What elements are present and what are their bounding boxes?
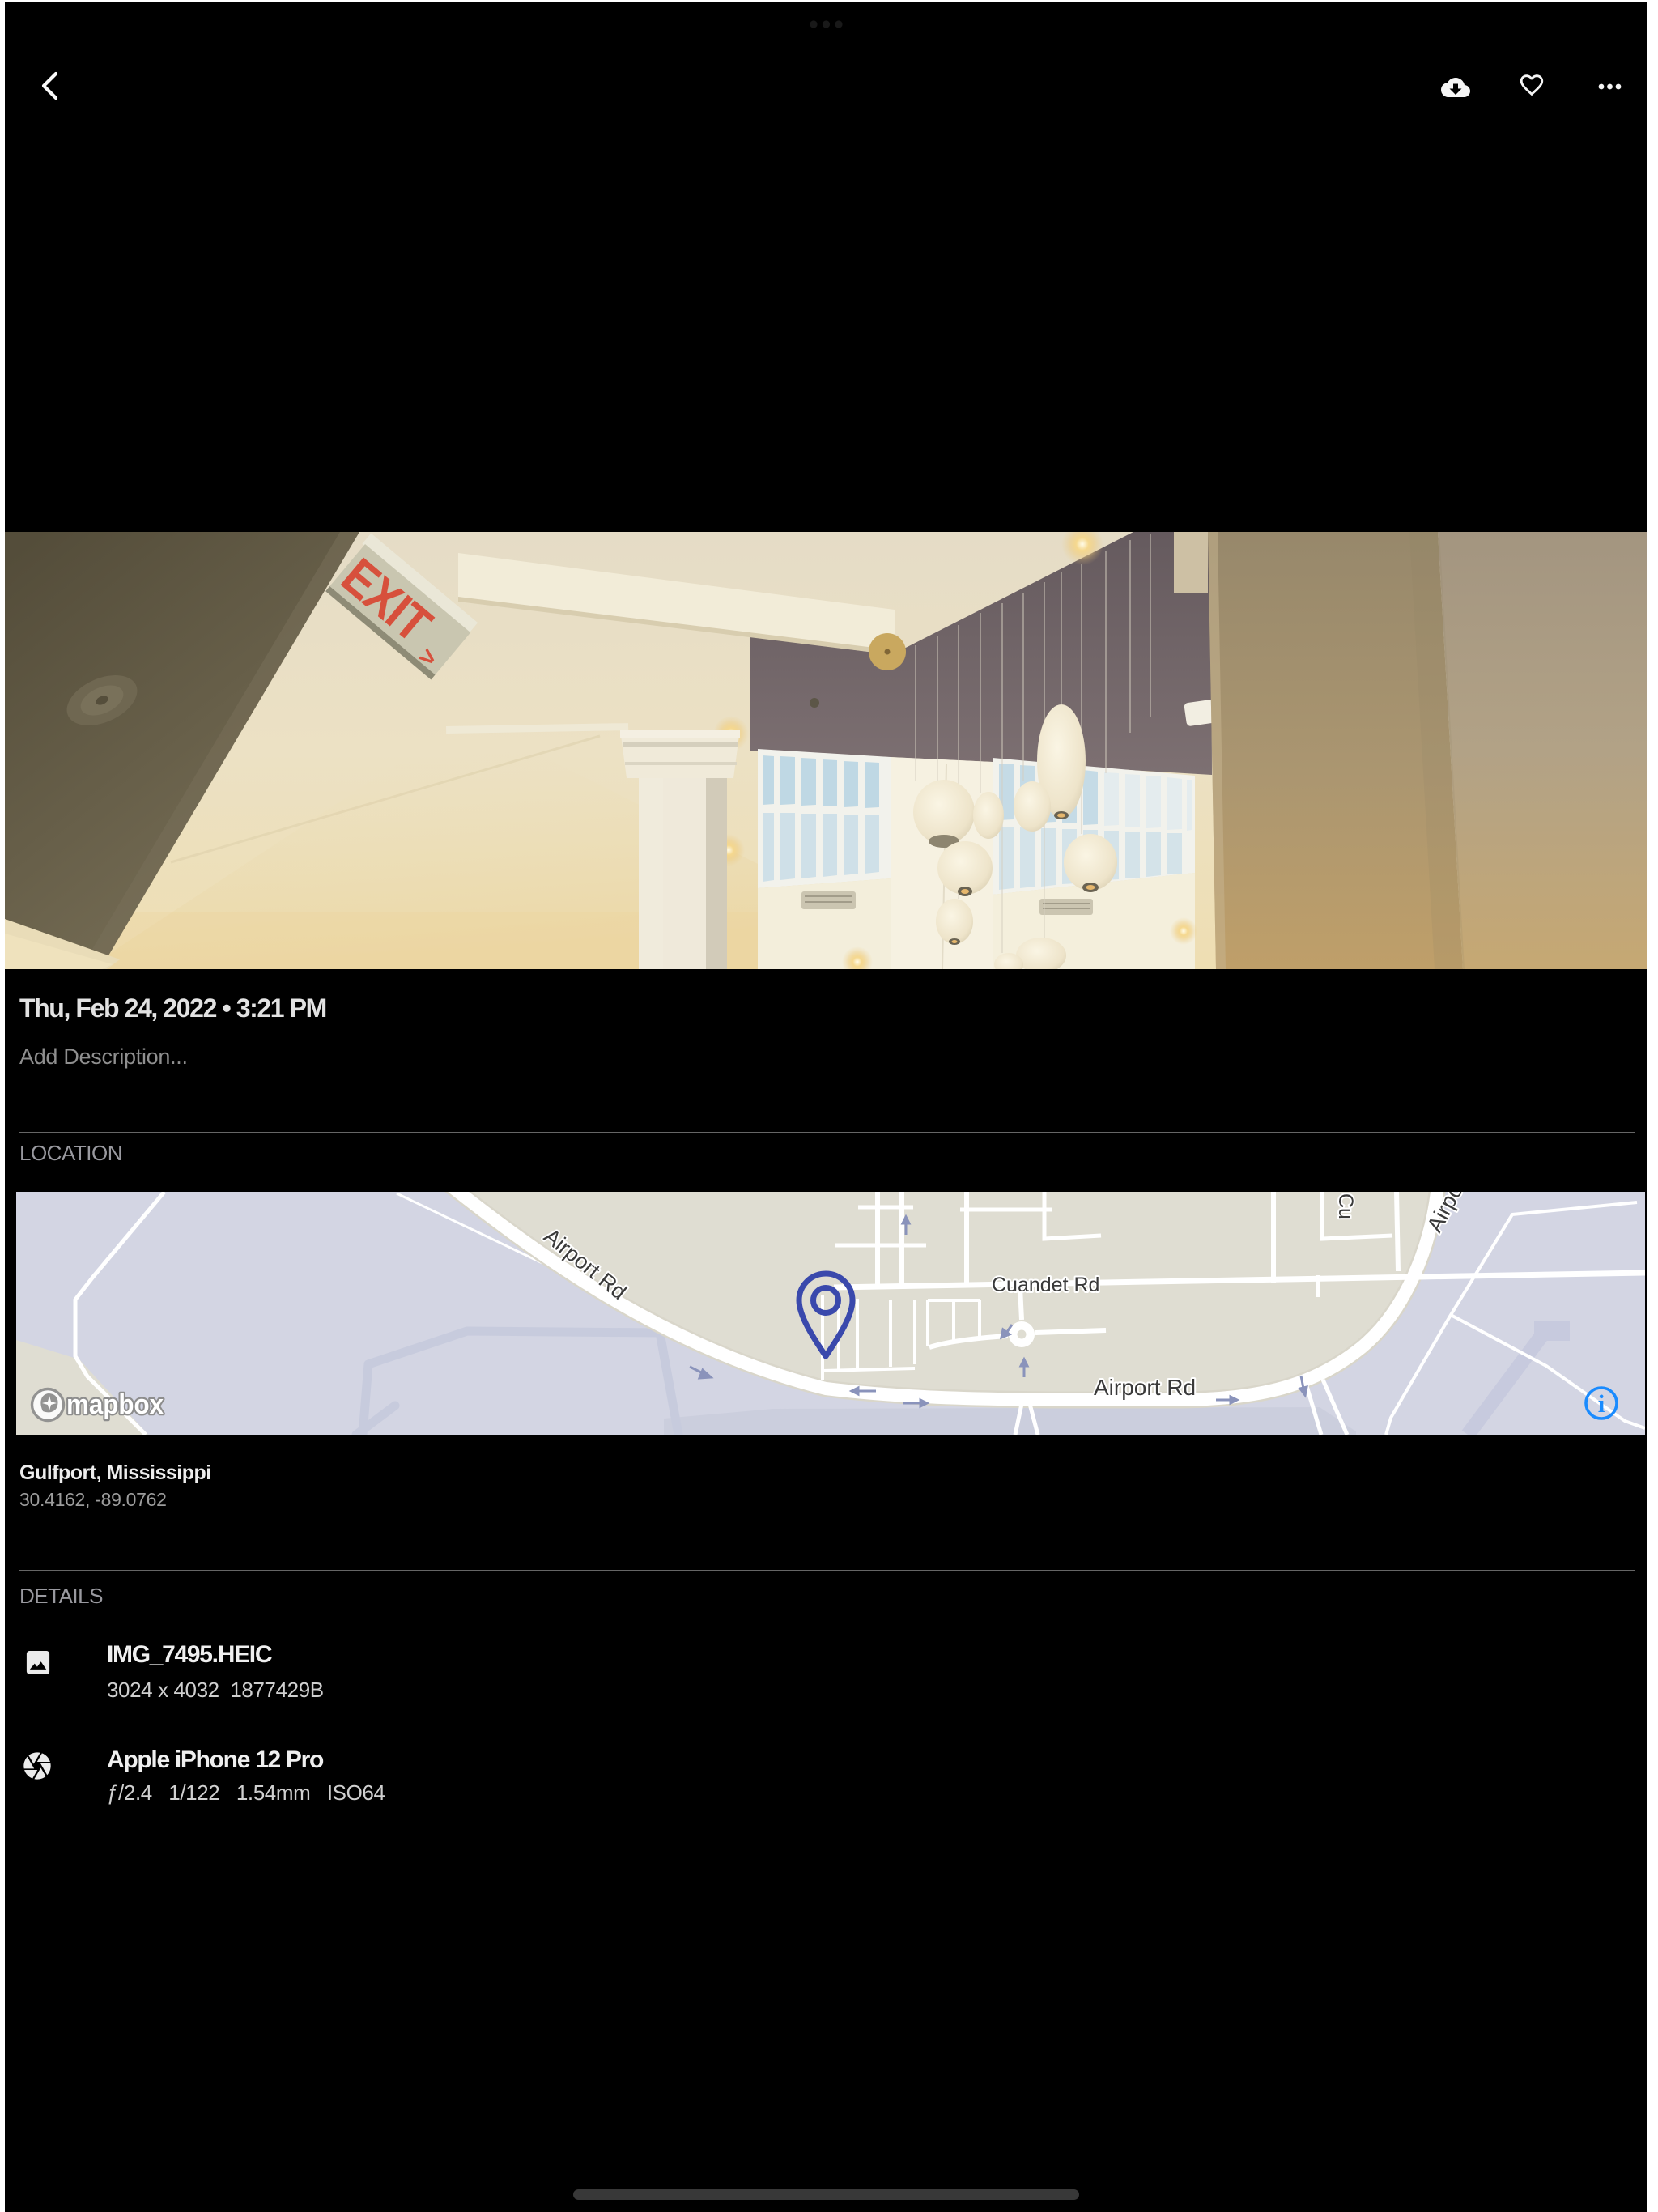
svg-text:Airport Rd: Airport Rd <box>1094 1375 1196 1400</box>
svg-text:mapbox: mapbox <box>66 1389 164 1420</box>
svg-text:Cu: Cu <box>1334 1193 1357 1219</box>
svg-text:i: i <box>1598 1389 1605 1418</box>
svg-text:Cuandet Rd: Cuandet Rd <box>992 1274 1099 1296</box>
